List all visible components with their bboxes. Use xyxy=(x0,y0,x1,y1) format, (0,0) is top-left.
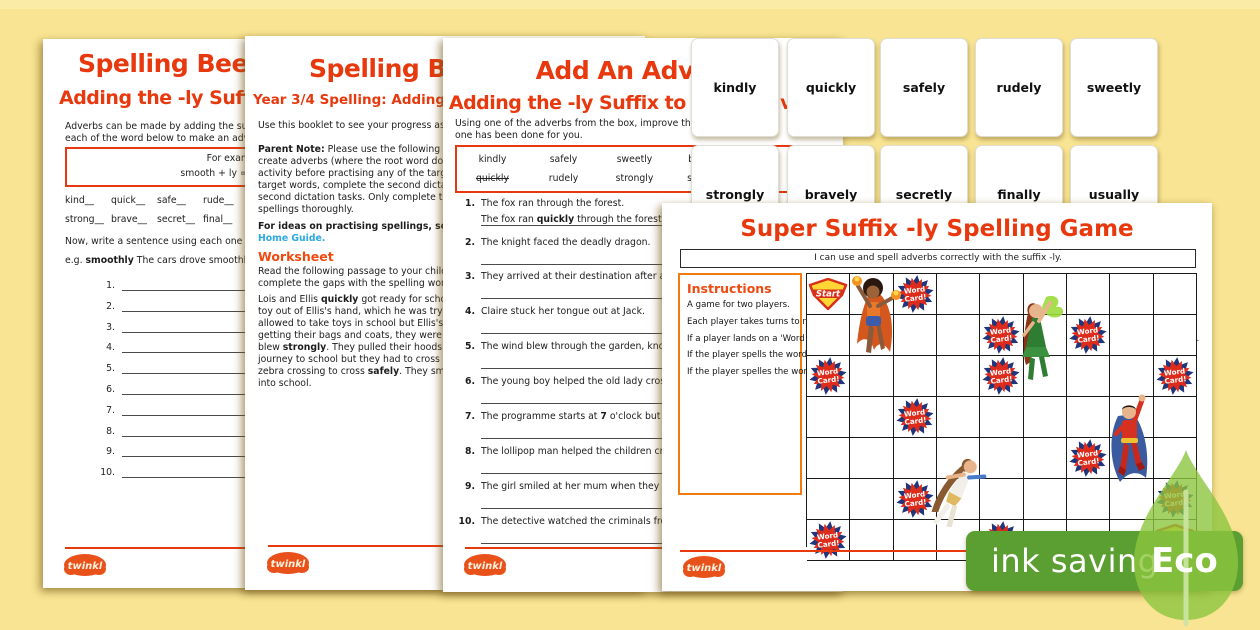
board-cell xyxy=(1154,274,1197,315)
word-card-label: kindly xyxy=(714,80,757,95)
sentence-number: 6. xyxy=(457,376,475,388)
page1-subtitle: Adding the -ly Suffi xyxy=(59,87,257,109)
line-number: 10. xyxy=(93,467,115,478)
word-stem: final__ xyxy=(203,214,232,226)
line-number: 4. xyxy=(93,342,115,353)
word-stem: secret__ xyxy=(157,214,195,226)
twinkl-logo-icon: twinkl xyxy=(63,552,107,578)
line-number: 8. xyxy=(93,426,115,437)
board-cell xyxy=(1110,274,1153,315)
page3-subtitle: Adding the -ly Suffix to Make Adverbs xyxy=(443,92,843,114)
word-card-label: secretly xyxy=(896,187,952,202)
board-cell xyxy=(807,397,850,438)
word-card-label: strongly xyxy=(706,187,764,202)
board-cell xyxy=(1154,397,1197,438)
board-cell xyxy=(850,438,893,479)
instruction-paragraph: Each player takes turns to roll a dice. xyxy=(687,317,793,328)
twinkl-logo: twinkl xyxy=(463,552,507,578)
word-card[interactable]: sweetly xyxy=(1070,38,1158,137)
board-cell xyxy=(937,315,980,356)
line-number: 3. xyxy=(93,322,115,333)
line-number: 5. xyxy=(93,363,115,374)
word-card-burst-icon: WordCard! xyxy=(808,520,848,560)
line-number: 1. xyxy=(93,280,115,291)
word-card[interactable]: rudely xyxy=(975,38,1063,137)
adverb-option: safely xyxy=(528,152,599,167)
word-card-burst-icon: WordCard! xyxy=(895,397,935,437)
board-cell xyxy=(1067,274,1110,315)
example-answer: The fox ran quickly through the forest. xyxy=(481,214,665,226)
twinkl-logo-icon: twinkl xyxy=(266,550,310,576)
sentence-number: 7. xyxy=(457,411,475,423)
twinkl-logo: twinkl xyxy=(682,554,726,580)
word-card-burst-icon: WordCard! xyxy=(808,356,848,396)
instruction-paragraph: A game for two players. xyxy=(687,300,793,311)
word-card-label: quickly xyxy=(806,80,856,95)
line-number: 6. xyxy=(93,384,115,395)
adverb-option: strongly xyxy=(599,171,670,186)
board-cell xyxy=(1024,479,1067,520)
board-cell xyxy=(937,397,980,438)
resource-preview: Spelling Bee's A Adding the -ly Suffi Ad… xyxy=(0,0,1260,630)
board-cell xyxy=(1110,315,1153,356)
word-card-label: finally xyxy=(997,187,1040,202)
start-shield-icon: Start xyxy=(808,278,848,310)
page2-worksheet-heading: Worksheet xyxy=(258,249,334,264)
line-number: 9. xyxy=(93,446,115,457)
sentence-number: 5. xyxy=(457,341,475,353)
word-card[interactable]: kindly xyxy=(691,38,779,137)
board-cell xyxy=(807,315,850,356)
board-cell xyxy=(937,356,980,397)
eco-label: Eco xyxy=(1151,541,1218,581)
sentence-number: 2. xyxy=(457,237,475,249)
sentence-text: Claire stuck her tongue out at Jack. xyxy=(481,306,645,318)
board-cell: WordCard! xyxy=(807,520,850,561)
word-stem: strong__ xyxy=(65,214,104,226)
twinkl-logo: twinkl xyxy=(266,550,310,576)
eco-leaf-icon xyxy=(1126,450,1246,628)
adverb-option: sweetly xyxy=(599,152,670,167)
forest-superhero-icon xyxy=(1006,291,1066,393)
board-cell xyxy=(850,479,893,520)
background-highlight xyxy=(0,0,1260,9)
twinkl-logo-icon: twinkl xyxy=(682,554,726,580)
word-card-label: safely xyxy=(903,80,945,95)
twinkl-logo: twinkl xyxy=(63,552,107,578)
instruction-paragraph: If the player spells the word correctly,… xyxy=(687,350,793,361)
sentence-number: 3. xyxy=(457,271,475,283)
board-cell xyxy=(980,397,1023,438)
sentence-number: 4. xyxy=(457,306,475,318)
adverb-option: quickly xyxy=(457,171,528,186)
word-stem: quick__ xyxy=(111,195,145,207)
sentence-text: The knight faced the deadly dragon. xyxy=(481,237,651,249)
word-stem: brave__ xyxy=(111,214,147,226)
adverb-option: kindly xyxy=(457,152,528,167)
word-card-label: rudely xyxy=(997,80,1042,95)
svg-text:Start: Start xyxy=(816,290,841,300)
instructions-box: Instructions A game for two players.Each… xyxy=(678,273,802,495)
sentence-text: The fox ran through the forest. xyxy=(481,198,624,210)
line-number: 2. xyxy=(93,301,115,312)
svg-text:twinkl: twinkl xyxy=(271,559,306,570)
word-card-label: usually xyxy=(1089,187,1139,202)
page2-link-line-2[interactable]: Home Guide. xyxy=(258,233,325,245)
board-cell xyxy=(807,438,850,479)
word-stem: safe__ xyxy=(157,195,186,207)
word-card[interactable]: safely xyxy=(880,38,968,137)
word-stem: rude__ xyxy=(203,195,234,207)
instructions-heading: Instructions xyxy=(687,281,793,296)
page1-intro-2: each of the word below to make an adverb… xyxy=(65,133,268,145)
word-card-burst-icon: WordCard! xyxy=(1068,315,1108,355)
svg-text:twinkl: twinkl xyxy=(687,563,722,574)
i-can-statement: I can use and spell adverbs correctly wi… xyxy=(680,249,1196,268)
word-card-label: sweetly xyxy=(1087,80,1141,95)
svg-text:twinkl: twinkl xyxy=(68,561,103,572)
board-cell xyxy=(807,479,850,520)
word-card-label: bravely xyxy=(805,187,858,202)
flame-superhero-icon xyxy=(845,266,901,374)
board-cell xyxy=(1024,397,1067,438)
page3-title: Add An Adverb! xyxy=(443,56,843,85)
adverb-option: rudely xyxy=(528,171,599,186)
page3-intro-2: one has been done for you. xyxy=(455,130,583,142)
board-cell: WordCard! xyxy=(1154,356,1197,397)
page2-subtitle: Year 3/4 Spelling: Adding th xyxy=(253,92,466,108)
word-card-burst-icon: WordCard! xyxy=(1155,356,1195,396)
svg-text:twinkl: twinkl xyxy=(468,561,503,572)
game-title: Super Suffix -ly Spelling Game xyxy=(662,216,1212,242)
word-card[interactable]: quickly xyxy=(787,38,875,137)
board-cell xyxy=(850,397,893,438)
board-cell: Start xyxy=(807,274,850,315)
sentence-number: 9. xyxy=(457,481,475,493)
board-cell: WordCard! xyxy=(807,356,850,397)
instruction-paragraph: If the player spelles the word wrongly, … xyxy=(687,367,793,378)
instruction-paragraph: If a player lands on a 'Word Card!' squa… xyxy=(687,334,793,345)
sentence-number: 8. xyxy=(457,446,475,458)
twinkl-logo-icon: twinkl xyxy=(463,552,507,578)
sentence-number: 1. xyxy=(457,198,475,210)
board-cell xyxy=(937,274,980,315)
board-cell: WordCard! xyxy=(1067,315,1110,356)
page2-title: Spelling Be xyxy=(309,54,462,83)
instructions-list: A game for two players.Each player takes… xyxy=(687,300,793,378)
line-number: 7. xyxy=(93,405,115,416)
word-stem: kind__ xyxy=(65,195,94,207)
board-cell xyxy=(850,520,893,561)
sentence-number: 10. xyxy=(457,516,475,528)
board-cell xyxy=(1154,315,1197,356)
board-cell: WordCard! xyxy=(894,397,937,438)
board-cell xyxy=(1024,438,1067,479)
